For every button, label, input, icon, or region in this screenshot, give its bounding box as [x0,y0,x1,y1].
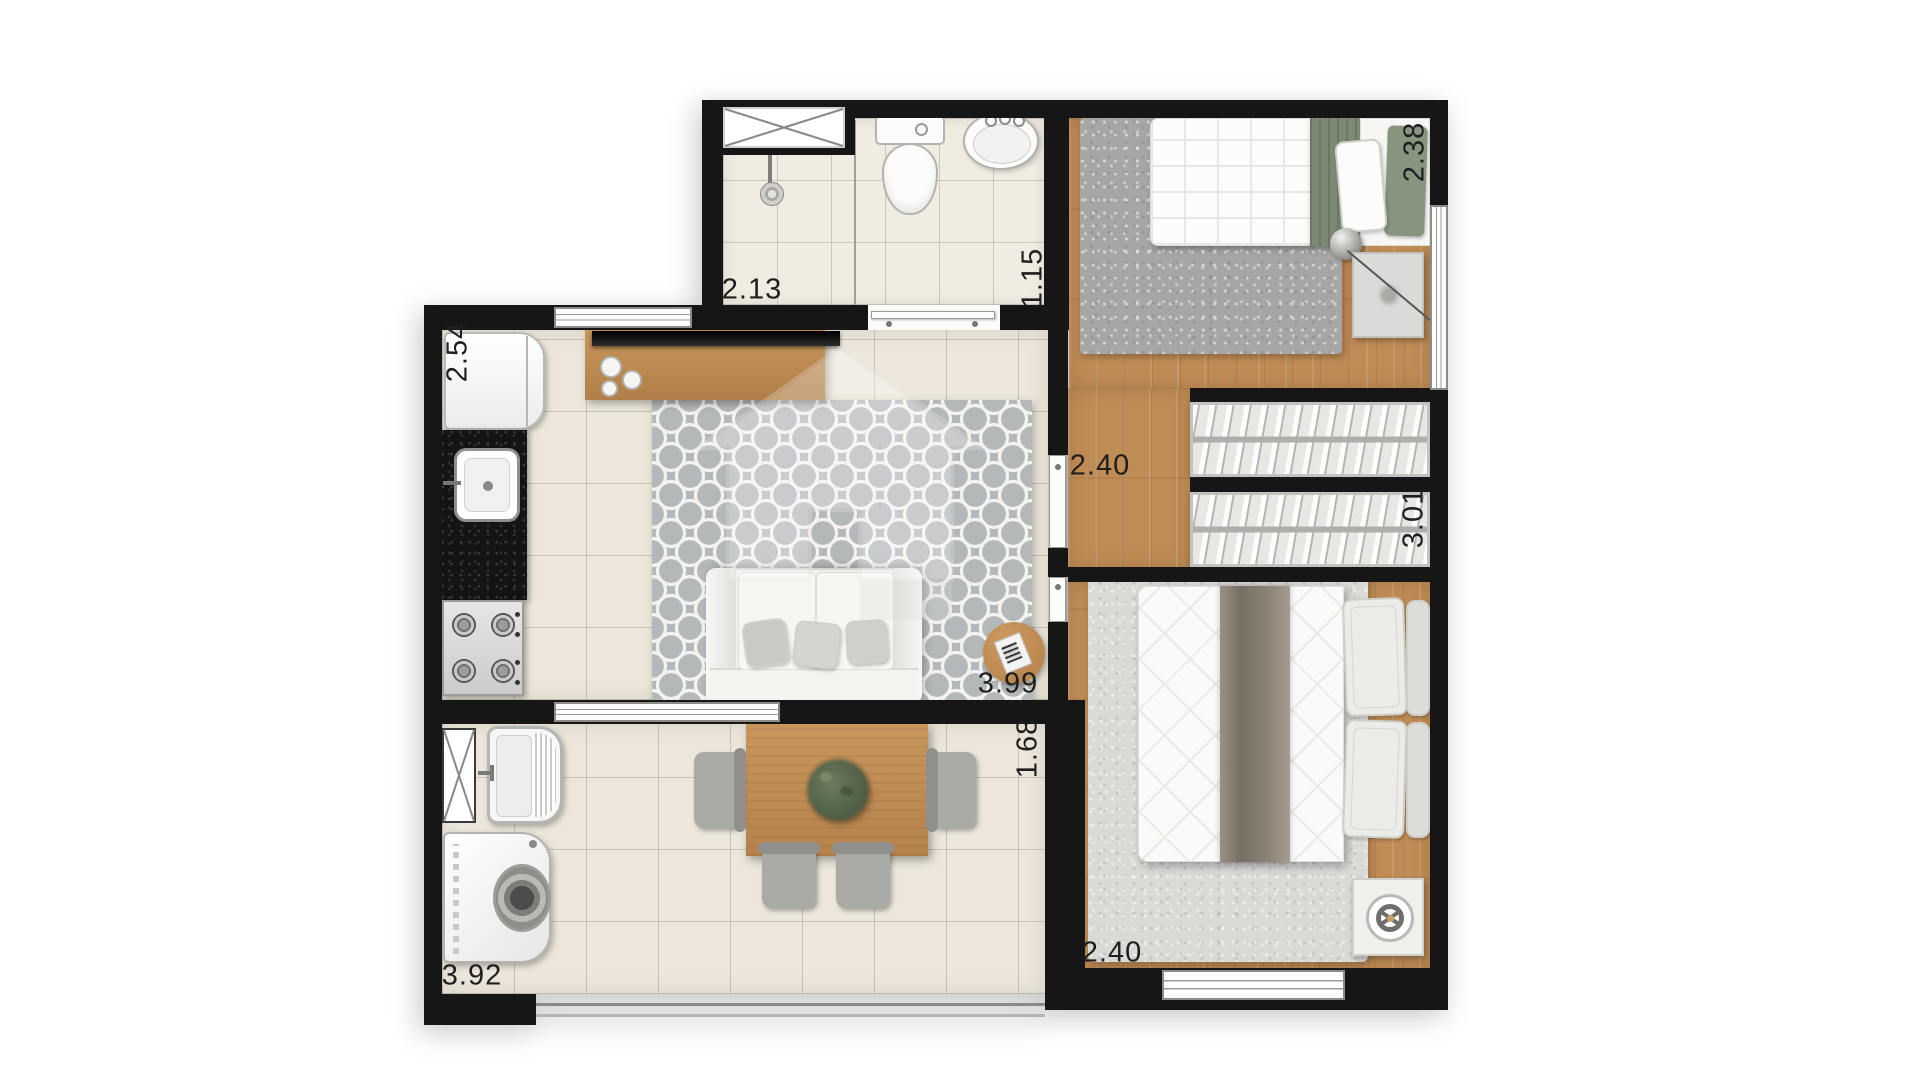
wall-hall-lower [1048,622,1068,700]
bedroom2-door-leaf [1049,577,1066,622]
dimension-terrace-width: 3.92 [442,960,502,993]
sofa-pillow [741,617,791,669]
wall-bedroom1-top [1069,100,1448,118]
tv [592,331,840,346]
wall-hall-south [1068,567,1448,582]
dining-table [746,724,928,856]
sofa-pillow [792,620,843,671]
dimension-bedroom2-width: 2.40 [1082,937,1142,970]
dining-chair-west [694,752,742,828]
dimension-bedroom1-width: 2.38 [1399,122,1432,182]
single-bed [1150,118,1430,246]
double-bed [1138,586,1430,862]
kitchen-stove [442,600,524,696]
sofa-pillow [845,619,890,666]
wall-hall-mid [1048,548,1068,577]
kitchen-faucet-icon [443,481,461,485]
dimension-bathroom-width: 2.13 [722,274,782,307]
dining-chair-east [930,752,976,828]
bed1-pillow [1334,138,1388,234]
bed2-pillow [1342,597,1408,717]
laundry-sink [487,726,563,824]
bed2-back-pillow [1406,600,1430,716]
laundry-shaft [442,728,476,823]
plant-centerpiece [808,760,868,820]
stove-burner-icon [488,610,518,640]
wall-bedroom1-south [1190,388,1448,402]
dining-chair-south-1 [762,846,816,908]
stove-burner-icon [449,610,479,640]
ventilation-shaft [723,107,845,148]
terrace-sliding-door [554,702,780,722]
apartment-floor-plan: 2.54 2.13 1.15 2.38 2.40 3.01 3.99 1.68 … [0,0,1920,1080]
wardrobe-bedroom1 [1190,402,1430,477]
stove-burner-icon [449,656,479,686]
wall-terrace-corner-stub [424,994,536,1025]
wardrobe-bedroom2 [1190,492,1430,567]
dimension-living-length: 3.99 [978,668,1038,701]
kitchen-window [554,307,692,328]
table-fan-icon [1366,894,1414,942]
shower-head-icon [760,150,780,210]
bathroom-sink [963,112,1039,170]
dimension-hall-width: 2.40 [1070,450,1130,483]
terrace-railing [536,1003,1045,1017]
wall-bathroom-top-thin [855,100,1069,118]
hall-door-leaf [1049,455,1066,548]
bedroom2-nightstand [1352,878,1424,956]
bed2-back-pillow [1406,722,1430,838]
toilet [875,115,945,215]
wall-bathroom-south-right [1000,305,1069,330]
stove-burner-icon [488,656,518,686]
fridge-door-seam [526,336,528,426]
washing-machine [443,832,551,963]
decor-plates [598,356,648,402]
dimension-wardrobe-length: 3.01 [1398,488,1431,548]
bathroom-door [868,305,1000,330]
bed-runner [1220,586,1290,862]
wall-bathroom-left [702,118,723,330]
wall-left [424,330,442,1025]
dining-chair-south-2 [836,846,890,908]
dimension-bathroom-depth: 1.15 [1017,248,1050,308]
sofa [706,568,922,704]
kitchen-sink [454,448,520,522]
dimension-kitchen-depth: 2.54 [442,322,475,382]
bedroom1-window [1430,205,1448,390]
washer-drum-icon [493,864,551,932]
dimension-terrace-depth: 1.68 [1012,718,1045,778]
wall-hall-upper [1048,330,1068,455]
wall-bathroom-south-left [702,305,868,330]
wall-shaft-thick [1045,700,1085,970]
bed2-pillow [1342,719,1408,839]
bedroom2-window [1162,970,1345,1000]
floor-plan-stage: 2.54 2.13 1.15 2.38 2.40 3.01 3.99 1.68 … [0,0,1920,1080]
